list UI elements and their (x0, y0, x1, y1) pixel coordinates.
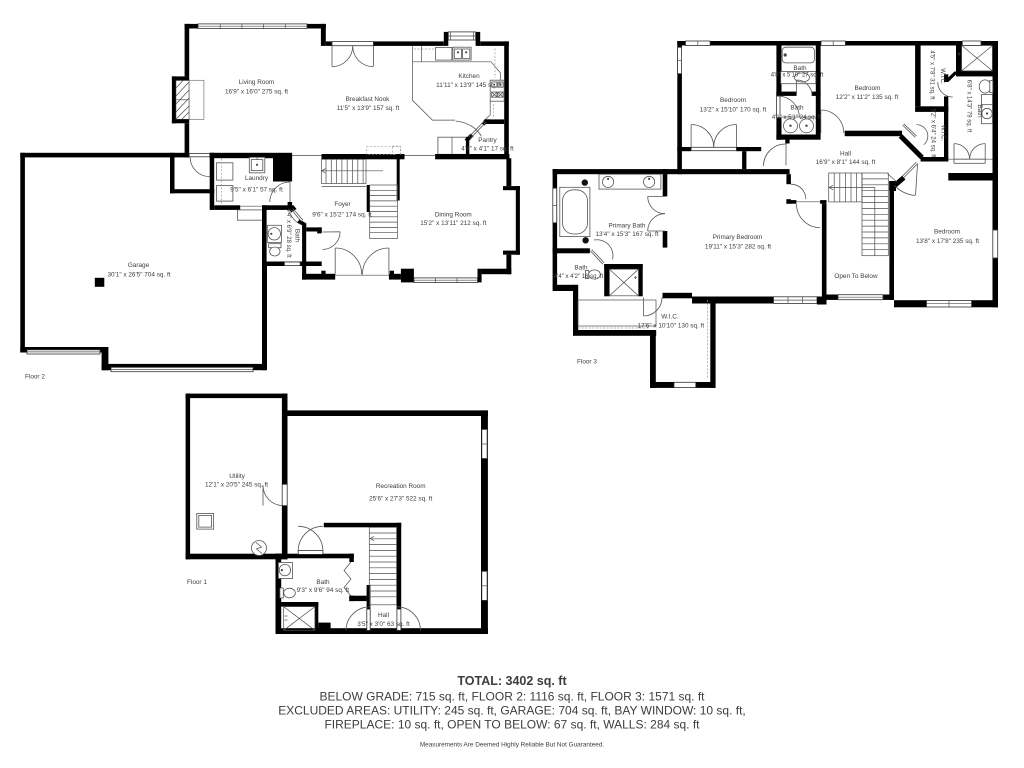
svg-text:9'5" x 6'1" 57 sq. ft: 9'5" x 6'1" 57 sq. ft (230, 187, 283, 194)
svg-text:11'11" x 13'9" 145 sq. ft: 11'11" x 13'9" 145 sq. ft (436, 82, 502, 89)
svg-text:Dining Room: Dining Room (435, 211, 472, 218)
svg-text:Floor 2: Floor 2 (25, 374, 45, 381)
svg-text:16'9" x 8'1" 144 sq. ft: 16'9" x 8'1" 144 sq. ft (816, 159, 876, 166)
svg-text:4'4" x 6'9" 28 sq. ft: 4'4" x 6'9" 28 sq. ft (285, 208, 291, 258)
svg-text:Floor 1: Floor 1 (187, 579, 207, 586)
svg-text:Pantry: Pantry (478, 137, 497, 144)
svg-text:Bedroom: Bedroom (855, 85, 881, 92)
svg-text:FIREPLACE: 10 sq. ft, OPEN TO: FIREPLACE: 10 sq. ft, OPEN TO BELOW: 67 … (324, 718, 700, 732)
svg-text:16'9" x 16'0" 275 sq. ft: 16'9" x 16'0" 275 sq. ft (225, 88, 288, 95)
svg-text:Hall: Hall (378, 612, 389, 619)
svg-text:Utility: Utility (229, 473, 245, 480)
svg-text:EXCLUDED AREAS: UTILITY: 245 s: EXCLUDED AREAS: UTILITY: 245 sq. ft, GAR… (278, 704, 746, 718)
svg-text:Bath: Bath (316, 579, 330, 586)
svg-text:Bath: Bath (574, 264, 588, 271)
svg-text:13'8" x 17'8" 235 sq. ft: 13'8" x 17'8" 235 sq. ft (916, 238, 979, 245)
svg-text:Garage: Garage (128, 262, 150, 269)
svg-text:Living Room: Living Room (239, 79, 275, 86)
svg-text:6'8" x 14'3" 79 sq. ft: 6'8" x 14'3" 79 sq. ft (966, 80, 972, 133)
svg-text:9'6" x 15'2" 174 sq. ft: 9'6" x 15'2" 174 sq. ft (312, 211, 372, 218)
svg-text:Bath: Bath (793, 65, 807, 72)
svg-text:Primary Bath: Primary Bath (609, 222, 646, 229)
svg-text:Primary Bedroom: Primary Bedroom (713, 234, 763, 241)
svg-text:9'3" x 9'6" 94 sq. ft: 9'3" x 9'6" 94 sq. ft (297, 587, 350, 594)
svg-text:Hall: Hall (840, 150, 851, 157)
svg-text:Measurements Are Deemed Highly: Measurements Are Deemed Highly Reliable … (420, 742, 605, 749)
svg-text:Laundry: Laundry (245, 175, 269, 182)
svg-text:13'2" x 15'10" 170 sq. ft: 13'2" x 15'10" 170 sq. ft (700, 106, 767, 113)
svg-text:Bath: Bath (790, 105, 804, 112)
svg-text:30'1" x 26'5" 704 sq. ft: 30'1" x 26'5" 704 sq. ft (107, 272, 170, 279)
svg-text:BELOW GRADE: 715 sq. ft, FLOOR: BELOW GRADE: 715 sq. ft, FLOOR 2: 1116 s… (319, 690, 705, 704)
svg-text:11'5" x 13'9" 157 sq. ft: 11'5" x 13'9" 157 sq. ft (337, 105, 400, 112)
svg-text:Bedroom: Bedroom (720, 97, 746, 104)
svg-text:13'4" x 15'3" 167 sq. ft: 13'4" x 15'3" 167 sq. ft (595, 231, 658, 238)
svg-text:17'6" x 10'10" 130 sq. ft: 17'6" x 10'10" 130 sq. ft (637, 323, 704, 330)
svg-text:12'1" x 20'5" 245 sq. ft: 12'1" x 20'5" 245 sq. ft (205, 481, 268, 488)
svg-text:Floor 3: Floor 3 (577, 359, 597, 366)
svg-text:15'2" x 13'11" 212 sq. ft: 15'2" x 13'11" 212 sq. ft (420, 220, 486, 227)
svg-text:Open To Below: Open To Below (834, 273, 878, 280)
svg-text:4'1" x 5'1" 24 sq. ft: 4'1" x 5'1" 24 sq. ft (772, 115, 822, 121)
svg-text:25'6" x 27'3" 522 sq. ft: 25'6" x 27'3" 522 sq. ft (369, 495, 432, 502)
svg-text:W.I.C.: W.I.C. (661, 314, 679, 321)
svg-text:Bedroom: Bedroom (934, 229, 960, 236)
svg-text:Foyer: Foyer (334, 201, 351, 208)
svg-text:19'11" x 15'3" 282 sq. ft: 19'11" x 15'3" 282 sq. ft (705, 243, 771, 250)
svg-text:TOTAL: 3402 sq. ft: TOTAL: 3402 sq. ft (457, 674, 567, 688)
svg-text:W.I.C.: W.I.C. (940, 125, 946, 142)
svg-text:3'5" x 3'0" 63 sq. ft: 3'5" x 3'0" 63 sq. ft (357, 621, 410, 628)
svg-text:W.I.C.: W.I.C. (939, 68, 945, 85)
svg-text:Breakfast Nook: Breakfast Nook (346, 96, 390, 103)
svg-text:Recreation Room: Recreation Room (376, 483, 426, 490)
svg-text:4'5" x 7'8" 31 sq. ft: 4'5" x 7'8" 31 sq. ft (929, 50, 935, 100)
svg-text:Bath: Bath (976, 104, 983, 118)
svg-text:5'2" x 6'4" 24 sq. ft: 5'2" x 6'4" 24 sq. ft (930, 108, 936, 158)
svg-text:4'8" x 5'10" 27 sq. ft: 4'8" x 5'10" 27 sq. ft (771, 73, 824, 79)
svg-text:Bath: Bath (294, 229, 301, 243)
svg-text:4'4" x 4'2" 16 sq. ft: 4'4" x 4'2" 16 sq. ft (554, 274, 604, 280)
svg-text:12'2" x 11'2" 135 sq. ft: 12'2" x 11'2" 135 sq. ft (836, 94, 899, 101)
svg-text:4'9" x 4'1" 17 sq. ft: 4'9" x 4'1" 17 sq. ft (461, 145, 514, 152)
svg-text:Kitchen: Kitchen (458, 73, 480, 80)
